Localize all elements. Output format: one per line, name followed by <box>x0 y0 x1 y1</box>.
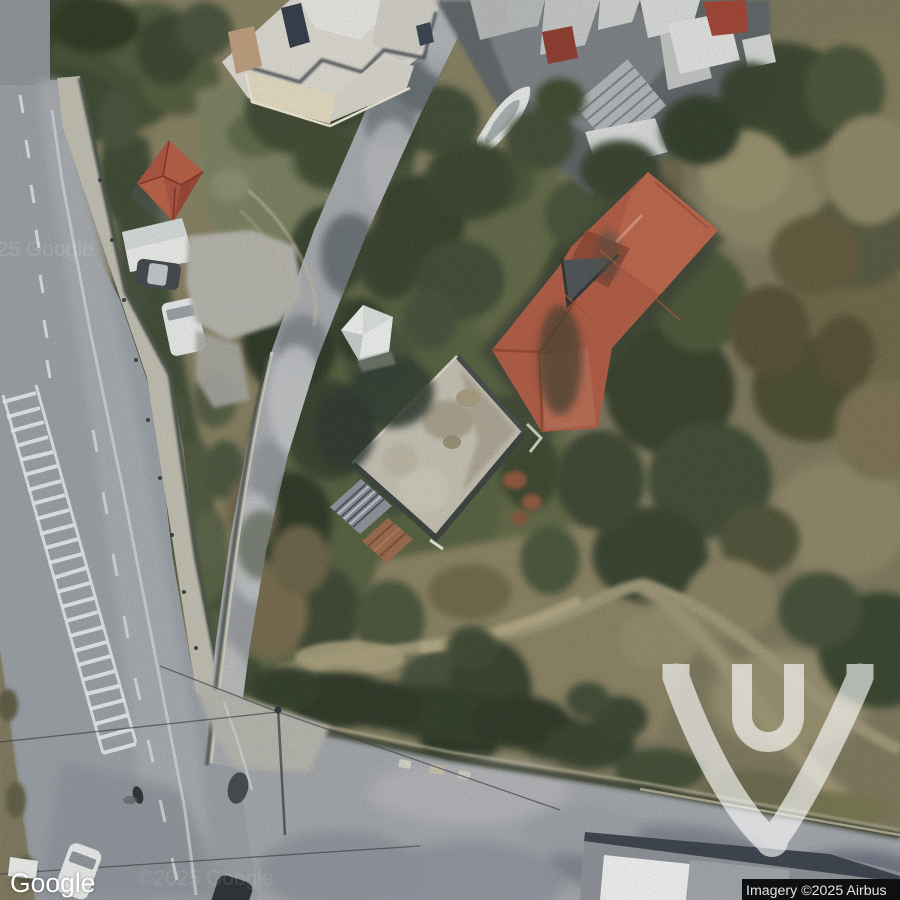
svg-text:©2025 Google: ©2025 Google <box>138 867 274 890</box>
svg-text:©2025 Google: ©2025 Google <box>0 238 94 261</box>
svg-text:Imagery ©2025 Airbus: Imagery ©2025 Airbus <box>746 883 887 899</box>
svg-text:Google: Google <box>10 868 95 898</box>
